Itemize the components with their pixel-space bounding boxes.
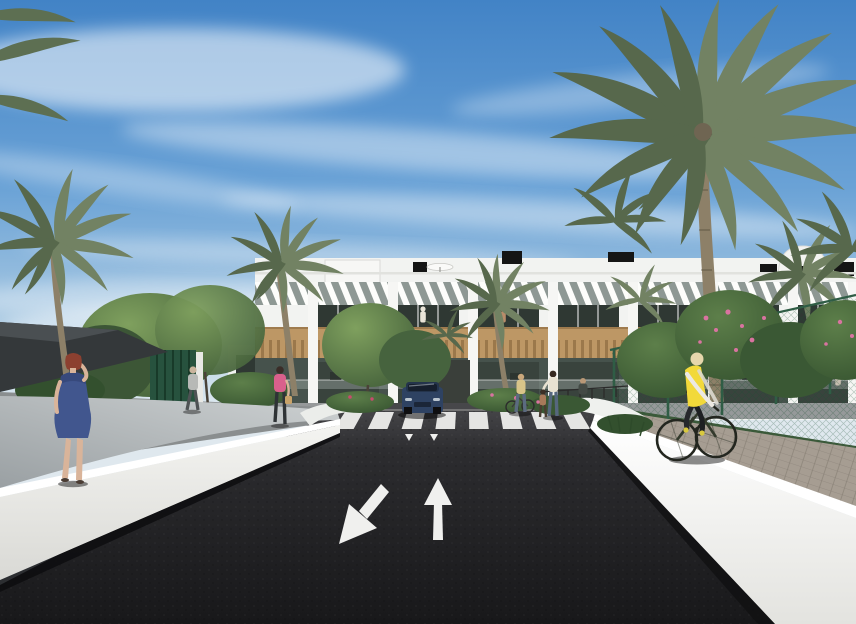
headlight xyxy=(405,398,412,401)
suv-car xyxy=(398,382,446,419)
headlight xyxy=(433,398,440,401)
handbag xyxy=(285,396,292,404)
scene-svg xyxy=(0,0,856,624)
render-image xyxy=(0,0,856,624)
